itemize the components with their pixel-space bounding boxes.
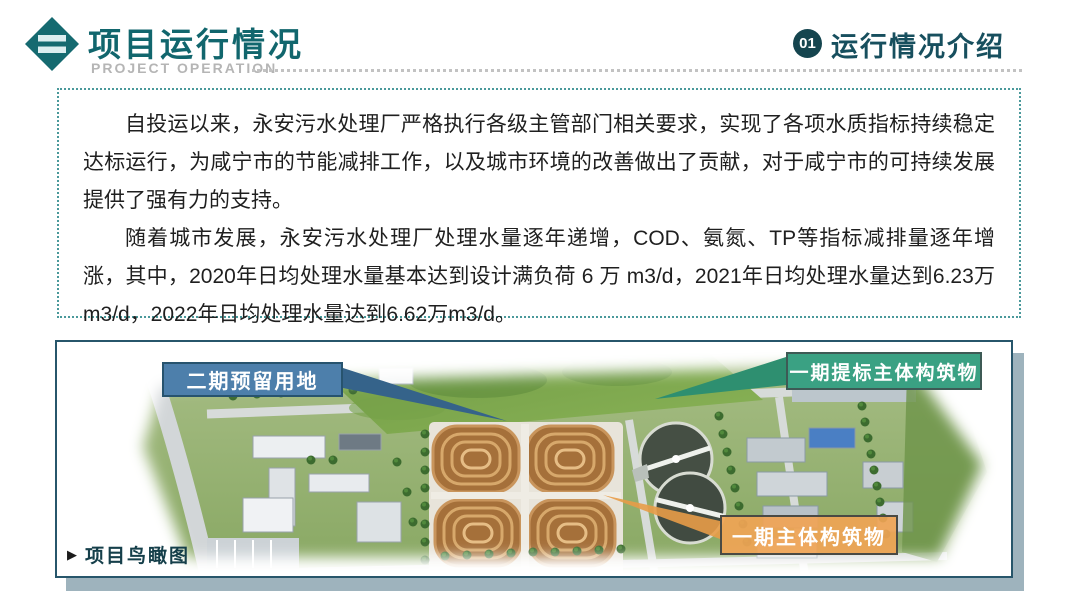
play-triangle-icon: ▶: [67, 548, 77, 561]
section-number-badge: 01: [793, 29, 822, 58]
chapter-diamond-two-icon: [24, 16, 80, 72]
intro-paragraph-1: 自投运以来，永安污水处理厂严格执行各级主管部门相关要求，实现了各项水质指标持续稳…: [83, 106, 995, 220]
photo-caption-text: 项目鸟瞰图: [85, 541, 190, 568]
label-phase1-main-structures: 一期主体构筑物: [720, 515, 898, 555]
label-phase1-upgrade-structures: 一期提标主体构筑物: [786, 352, 982, 390]
intro-text-panel: 自投运以来，永安污水处理厂严格执行各级主管部门相关要求，实现了各项水质指标持续稳…: [57, 88, 1021, 318]
oxidation-ditches: [429, 422, 623, 576]
intro-paragraph-2: 随着城市发展，永安污水处理厂处理水量逐年递增，COD、氨氮、TP等指标减排量逐年…: [83, 220, 995, 334]
section-title: 运行情况介绍: [831, 25, 1005, 64]
page-subtitle: PROJECT OPERATION: [91, 60, 277, 76]
aerial-photo-panel: 二期预留用地 一期提标主体构筑物 一期主体构筑物 ▶ 项目鸟瞰图: [55, 340, 1013, 578]
label-phase2-reserved-land: 二期预留用地: [162, 362, 343, 397]
page-title: 项目运行情况: [88, 18, 304, 66]
header-dotted-divider: [252, 69, 1022, 72]
photo-caption: ▶ 项目鸟瞰图: [67, 541, 190, 568]
